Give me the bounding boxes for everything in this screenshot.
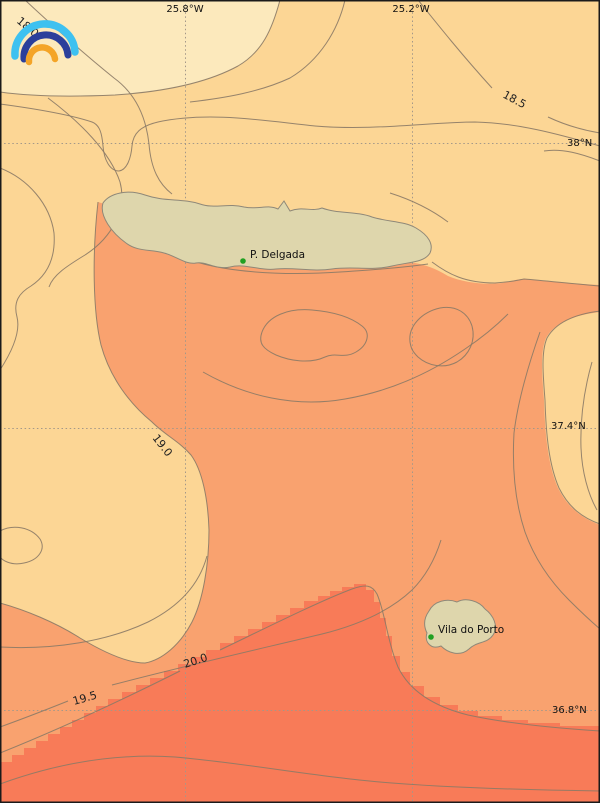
grid-label-37-4n: 37.4°N	[551, 421, 586, 432]
sst-map: P. Delgada Vila do Porto 18.0 18.5 19.0 …	[0, 0, 600, 803]
grid-label-36-8n: 36.8°N	[552, 705, 587, 716]
city-label-p-delgada: P. Delgada	[250, 249, 305, 261]
grid-label-25-8w: 25.8°W	[166, 4, 203, 15]
sst-map-window: P. Delgada Vila do Porto 18.0 18.5 19.0 …	[0, 0, 600, 803]
grid-label-38n: 38°N	[567, 138, 592, 149]
city-marker-p-delgada	[240, 258, 246, 264]
grid-label-25-2w: 25.2°W	[392, 4, 429, 15]
city-label-vila-do-porto: Vila do Porto	[438, 624, 504, 636]
city-marker-vila-do-porto	[428, 634, 434, 640]
